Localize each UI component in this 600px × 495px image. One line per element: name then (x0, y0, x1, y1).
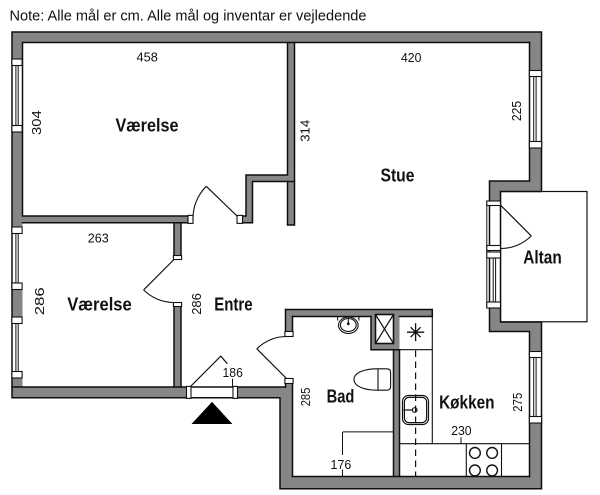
svg-text:458: 458 (137, 50, 158, 65)
svg-text:Værelse: Værelse (67, 294, 132, 314)
svg-text:Køkken: Køkken (439, 393, 494, 413)
svg-text:275: 275 (510, 393, 525, 412)
svg-text:304: 304 (29, 110, 44, 135)
svg-text:286: 286 (32, 287, 47, 315)
svg-text:225: 225 (509, 101, 524, 121)
svg-text:314: 314 (298, 120, 313, 142)
svg-text:186: 186 (223, 365, 243, 380)
svg-text:Stue: Stue (381, 166, 415, 186)
svg-text:Note: Alle mål er cm. Alle mål: Note: Alle mål er cm. Alle mål og invent… (10, 9, 367, 25)
svg-text:286: 286 (189, 293, 204, 315)
svg-text:420: 420 (401, 50, 421, 65)
svg-text:230: 230 (451, 423, 471, 438)
svg-text:Entre: Entre (214, 294, 252, 314)
svg-text:Værelse: Værelse (116, 116, 179, 136)
svg-text:Bad: Bad (327, 387, 355, 407)
svg-text:Altan: Altan (523, 248, 562, 268)
svg-text:176: 176 (331, 457, 352, 472)
svg-text:285: 285 (298, 388, 313, 407)
svg-text:263: 263 (88, 230, 109, 245)
